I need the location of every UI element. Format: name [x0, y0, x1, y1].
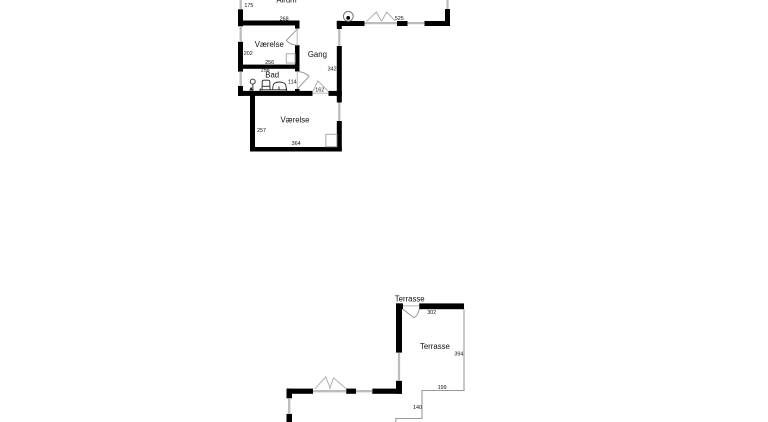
svg-text:268: 268 — [280, 16, 289, 22]
svg-text:257: 257 — [257, 128, 266, 134]
svg-text:114: 114 — [288, 80, 297, 86]
svg-text:364: 364 — [292, 141, 301, 147]
svg-text:342: 342 — [328, 67, 337, 73]
svg-text:Gang: Gang — [308, 50, 327, 59]
svg-text:Alrum: Alrum — [276, 0, 296, 5]
svg-text:394: 394 — [454, 352, 463, 358]
svg-text:256: 256 — [265, 60, 274, 66]
svg-text:Terrasse: Terrasse — [420, 342, 450, 351]
svg-text:302: 302 — [427, 310, 436, 316]
svg-text:175: 175 — [244, 3, 253, 9]
svg-text:Terrasse: Terrasse — [395, 295, 425, 304]
svg-text:525: 525 — [395, 16, 404, 22]
svg-text:162: 162 — [315, 87, 324, 93]
svg-text:Bad: Bad — [265, 71, 279, 80]
svg-text:140: 140 — [413, 405, 422, 411]
svg-text:Værelse: Værelse — [280, 116, 309, 125]
svg-text:202: 202 — [244, 51, 253, 57]
svg-text:199: 199 — [438, 385, 447, 391]
svg-text:Værelse: Værelse — [255, 40, 284, 49]
